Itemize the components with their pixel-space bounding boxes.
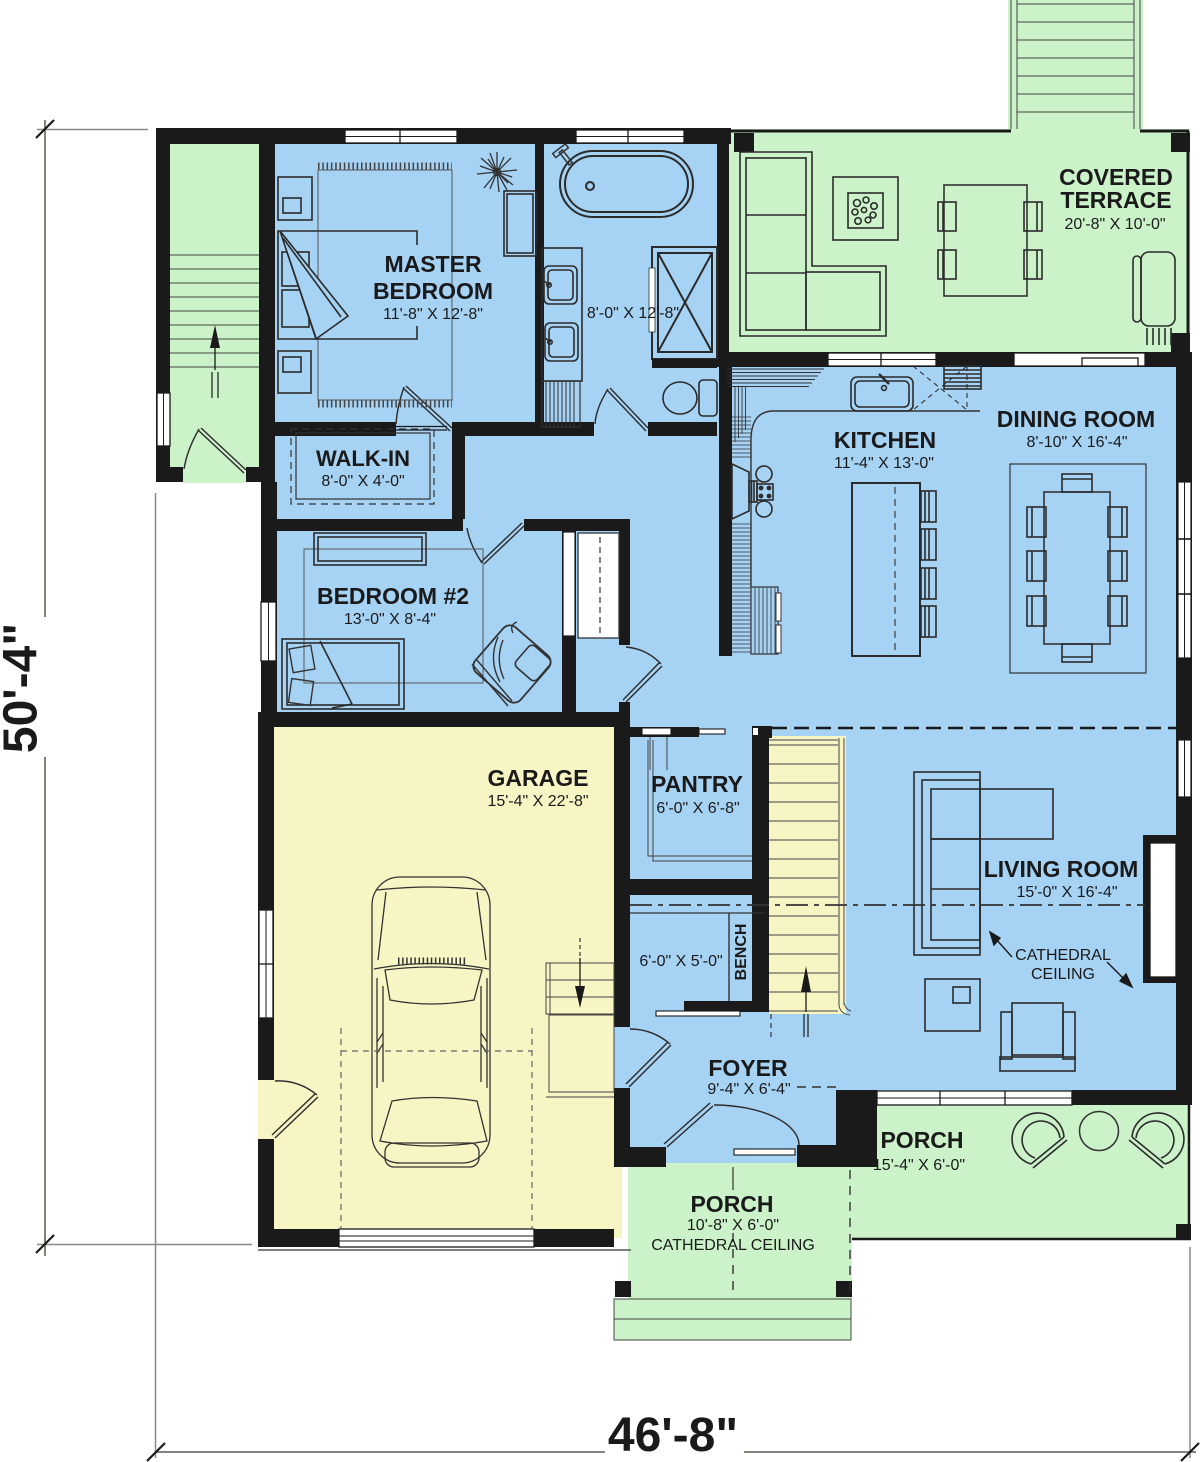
svg-text:13'-0" X 8'-4": 13'-0" X 8'-4" xyxy=(344,611,436,628)
svg-text:CATHEDRAL: CATHEDRAL xyxy=(1015,947,1111,964)
svg-text:DINING ROOM: DINING ROOM xyxy=(997,406,1155,432)
svg-text:WALK-IN: WALK-IN xyxy=(316,446,410,471)
svg-text:BEDROOM: BEDROOM xyxy=(373,278,493,304)
svg-text:LIVING ROOM: LIVING ROOM xyxy=(984,856,1139,882)
svg-text:8'-0" X 4'-0": 8'-0" X 4'-0" xyxy=(321,473,404,490)
svg-text:8'-10" X 16'-4": 8'-10" X 16'-4" xyxy=(1026,434,1127,451)
svg-text:11'-4" X 13'-0": 11'-4" X 13'-0" xyxy=(834,455,934,472)
svg-text:15'-4" X 6'-0": 15'-4" X 6'-0" xyxy=(873,1157,965,1174)
svg-text:CEILING: CEILING xyxy=(1031,966,1095,983)
svg-text:46'-8": 46'-8" xyxy=(608,1409,738,1462)
svg-text:6'-0" X 6'-8": 6'-0" X 6'-8" xyxy=(656,800,739,817)
svg-text:PANTRY: PANTRY xyxy=(651,771,743,797)
svg-text:6'-0" X 5'-0": 6'-0" X 5'-0" xyxy=(639,953,722,970)
svg-text:TERRACE: TERRACE xyxy=(1060,187,1171,213)
svg-text:8'-0" X 12'-8": 8'-0" X 12'-8" xyxy=(587,305,679,322)
svg-text:15'-0" X 16'-4": 15'-0" X 16'-4" xyxy=(1016,884,1117,901)
svg-text:CATHEDRAL CEILING: CATHEDRAL CEILING xyxy=(651,1237,815,1254)
svg-text:BENCH: BENCH xyxy=(733,924,750,981)
svg-text:BEDROOM #2: BEDROOM #2 xyxy=(317,583,469,609)
svg-text:15'-4" X 22'-8": 15'-4" X 22'-8" xyxy=(487,793,588,810)
svg-text:GARAGE: GARAGE xyxy=(488,765,589,791)
svg-text:KITCHEN: KITCHEN xyxy=(834,427,936,453)
svg-text:11'-8" X 12'-8": 11'-8" X 12'-8" xyxy=(383,306,483,323)
svg-text:PORCH: PORCH xyxy=(880,1127,963,1153)
svg-text:PORCH: PORCH xyxy=(690,1191,773,1217)
svg-text:20'-8" X 10'-0": 20'-8" X 10'-0" xyxy=(1064,216,1165,233)
svg-text:FOYER: FOYER xyxy=(708,1055,788,1081)
svg-text:MASTER: MASTER xyxy=(384,251,482,277)
svg-text:50'-4": 50'-4" xyxy=(0,623,48,753)
svg-text:10'-8" X 6'-0": 10'-8" X 6'-0" xyxy=(687,1217,779,1234)
svg-text:9'-4" X 6'-4": 9'-4" X 6'-4" xyxy=(707,1081,790,1098)
